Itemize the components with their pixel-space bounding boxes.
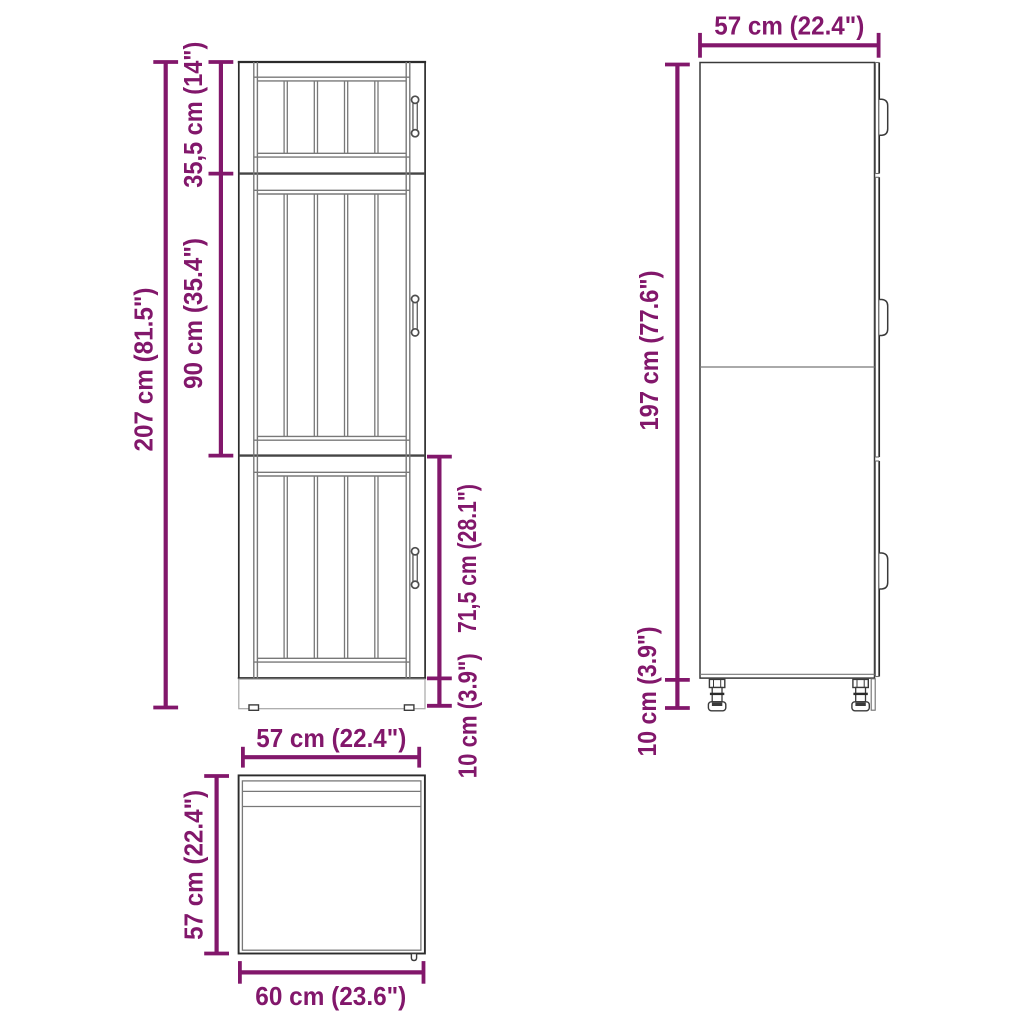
svg-text:10 cm (3.9"): 10 cm (3.9") [452, 653, 482, 778]
svg-text:90 cm (35.4"): 90 cm (35.4") [178, 238, 208, 389]
svg-text:35,5 cm (14"): 35,5 cm (14") [178, 42, 208, 188]
svg-text:57 cm (22.4"): 57 cm (22.4") [178, 790, 208, 940]
svg-text:71,5 cm (28.1"): 71,5 cm (28.1") [452, 484, 482, 633]
svg-text:207 cm (81.5"): 207 cm (81.5") [128, 288, 158, 452]
svg-text:57 cm (22.4"): 57 cm (22.4") [256, 723, 406, 753]
svg-text:57 cm (22.4"): 57 cm (22.4") [714, 11, 864, 41]
svg-text:60 cm (23.6"): 60 cm (23.6") [255, 981, 406, 1011]
svg-text:10 cm (3.9"): 10 cm (3.9") [632, 627, 662, 757]
svg-text:197 cm (77.6"): 197 cm (77.6") [634, 271, 664, 431]
